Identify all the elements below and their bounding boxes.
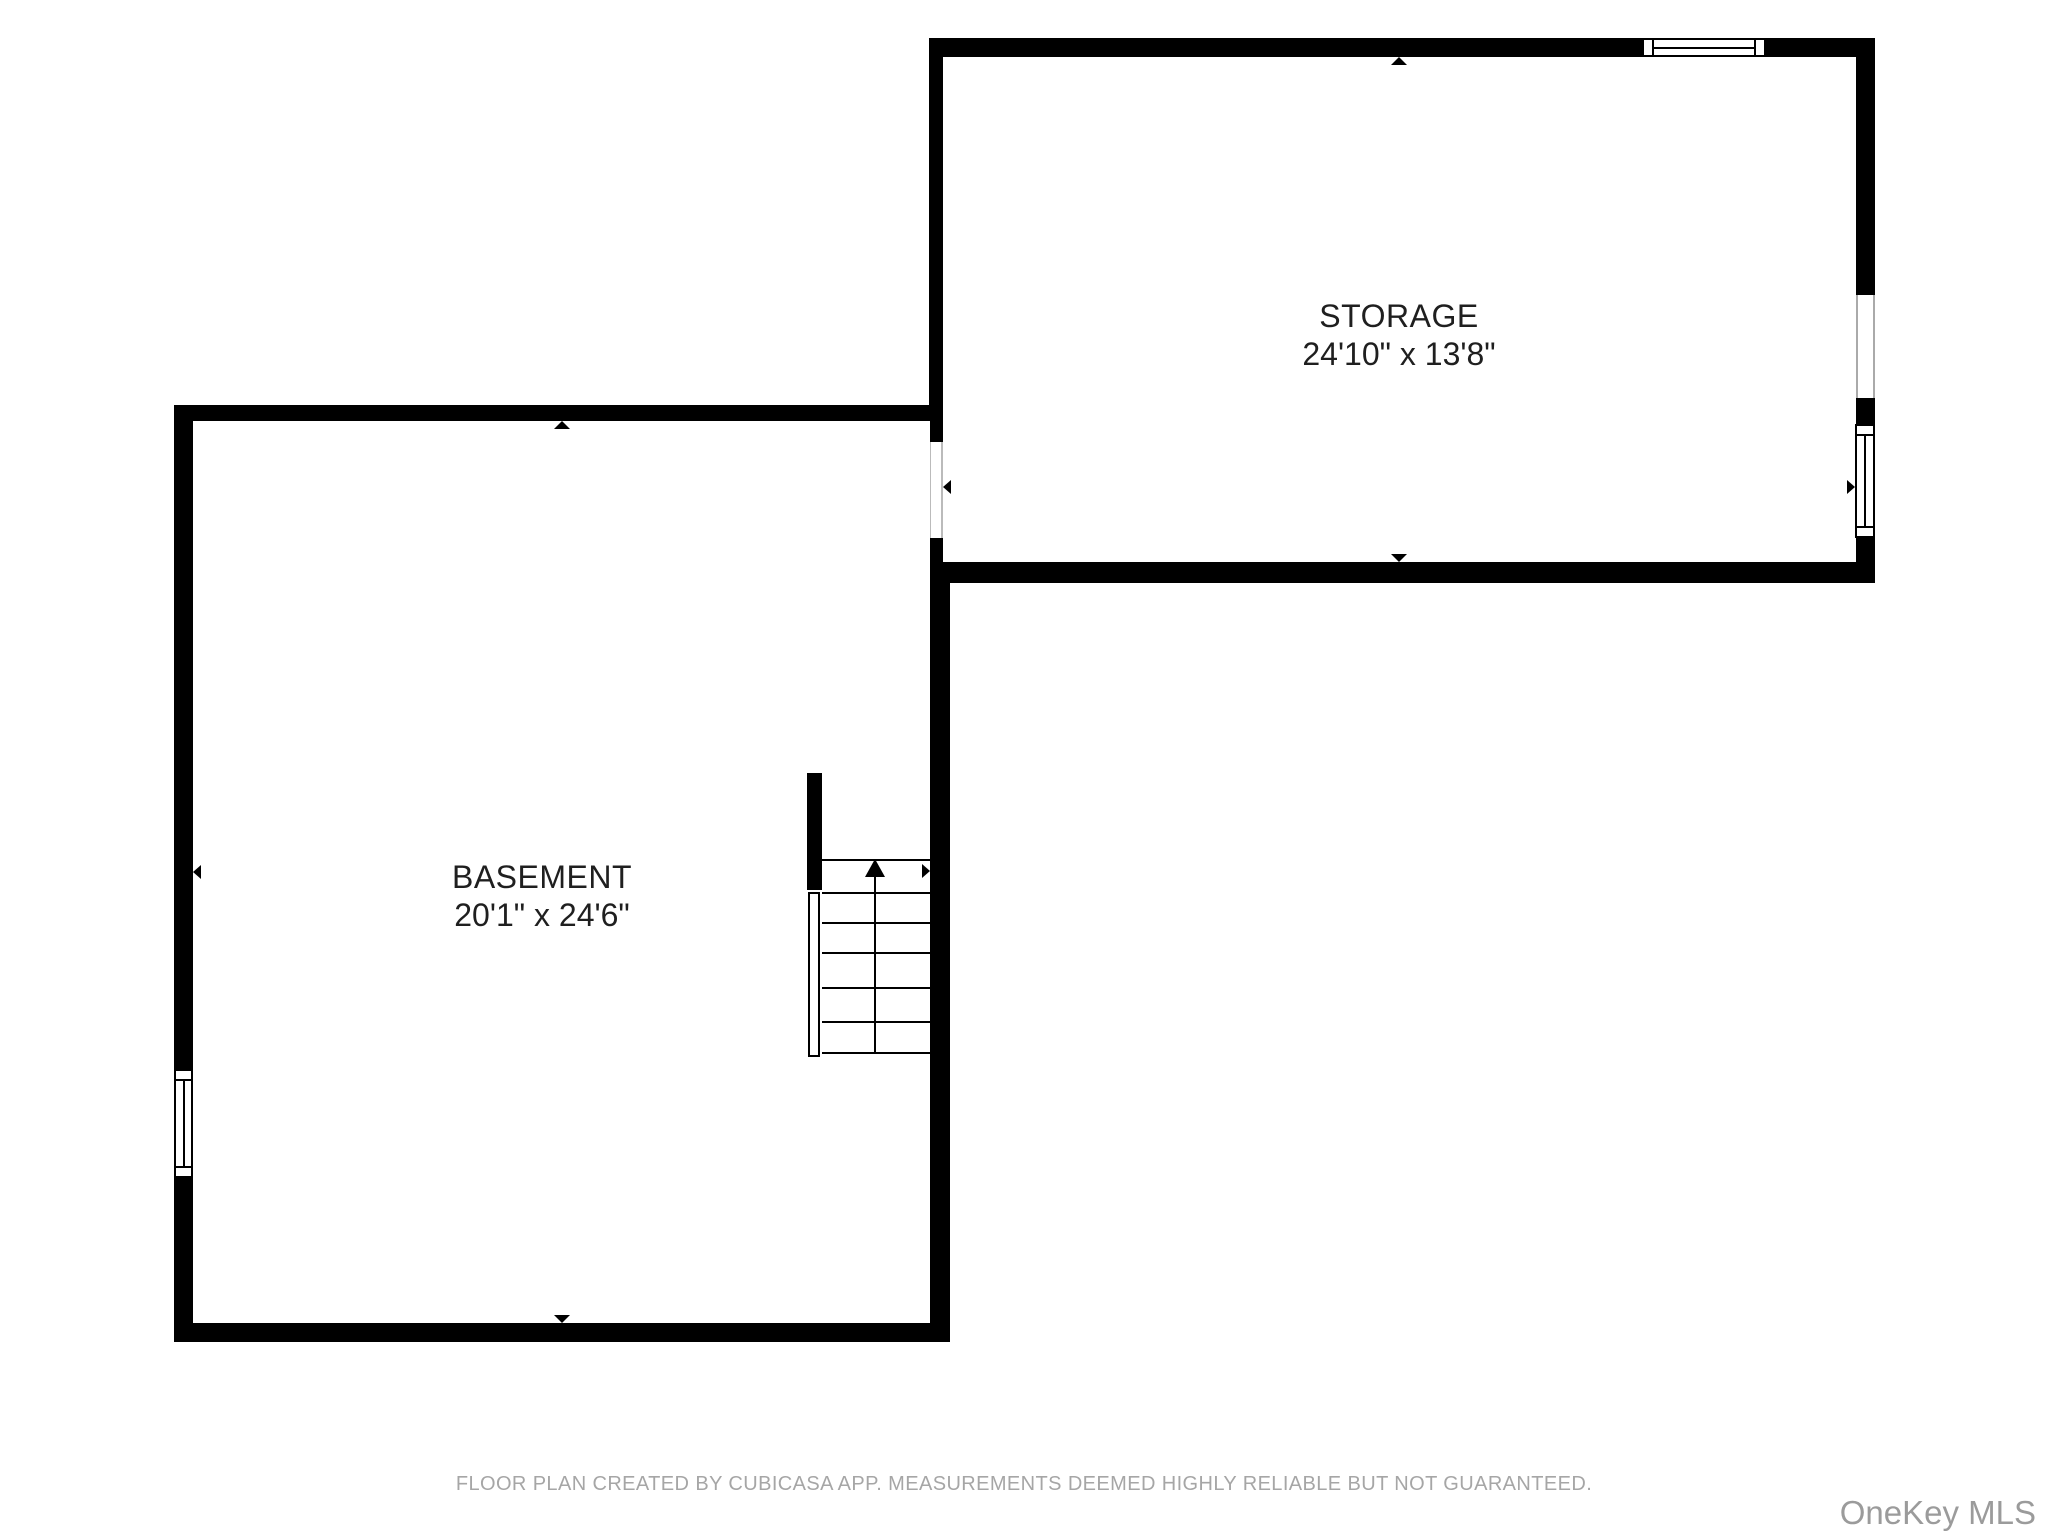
floor-plan-canvas: STORAGE 24'10" x 13'8" BASEMENT 20'1" x … [0, 0, 2048, 1536]
storage-right-wall-upper [1856, 38, 1875, 295]
mls-watermark: OneKey MLS [1840, 1494, 2036, 1532]
stair-tread-line [822, 892, 930, 894]
basement-top-wall-arrow-icon [554, 421, 570, 429]
basement-top-wall [174, 405, 943, 421]
right-wall-opening-edge [1873, 295, 1875, 398]
basement-left-window-icon [174, 1069, 193, 1178]
stair-direction-line [874, 877, 876, 1054]
storage-right-wall-mid [1856, 398, 1875, 424]
basement-room-name: BASEMENT [452, 858, 632, 896]
basement-bottom-wall [174, 1323, 950, 1342]
stair-tread-line [822, 1021, 930, 1023]
stair-tread-line [822, 952, 930, 954]
basement-right-wall-arrow-icon [922, 864, 930, 878]
storage-doorway-arrow-icon [943, 480, 951, 494]
stair-up-arrow-icon [865, 859, 885, 877]
storage-left-wall-upper [929, 38, 943, 442]
basement-left-wall-lower [174, 1178, 193, 1342]
storage-bottom-wall-arrow-icon [1391, 554, 1407, 562]
storage-room-name: STORAGE [1302, 297, 1495, 335]
storage-top-window-icon [1642, 38, 1766, 57]
stair-tread-line [822, 1052, 930, 1054]
right-wall-opening-edge [1856, 295, 1858, 398]
basement-bottom-wall-arrow-icon [554, 1315, 570, 1323]
stair-tread-line [822, 922, 930, 924]
storage-right-wall-lower [1856, 538, 1875, 583]
storage-room-label: STORAGE 24'10" x 13'8" [1302, 297, 1495, 373]
disclaimer-text: FLOOR PLAN CREATED BY CUBICASA APP. MEAS… [456, 1473, 1592, 1496]
stair-stringer [808, 892, 820, 1057]
basement-room-label: BASEMENT 20'1" x 24'6" [452, 858, 632, 934]
storage-top-wall-arrow-icon [1391, 57, 1407, 65]
basement-left-wall-upper [174, 405, 193, 1069]
storage-right-window-icon [1855, 424, 1875, 538]
stair-tread-line [822, 987, 930, 989]
storage-right-wall-arrow-icon [1847, 480, 1855, 494]
storage-room-dimensions: 24'10" x 13'8" [1302, 335, 1495, 373]
basement-left-wall-arrow-icon [193, 865, 201, 879]
basement-right-wall [930, 583, 950, 1323]
stair-stub-wall [807, 773, 822, 890]
storage-bottom-wall [929, 562, 1875, 583]
basement-room-dimensions: 20'1" x 24'6" [452, 896, 632, 934]
